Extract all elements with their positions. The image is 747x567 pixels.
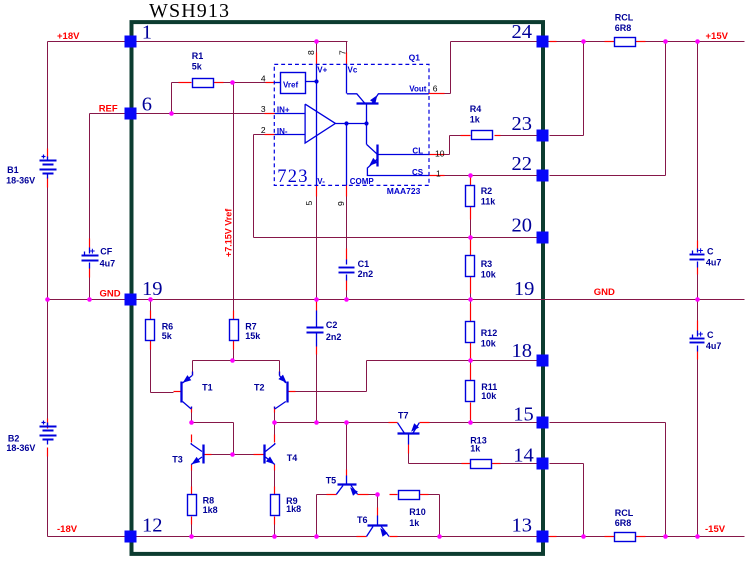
svg-text:IN-: IN-: [277, 127, 288, 136]
svg-text:1k: 1k: [409, 518, 420, 528]
svg-text:-18V: -18V: [57, 524, 78, 535]
svg-text:T6: T6: [357, 515, 368, 525]
svg-text:4u7: 4u7: [100, 259, 116, 269]
svg-text:24: 24: [512, 21, 533, 43]
svg-text:+18V: +18V: [57, 31, 80, 42]
svg-text:10k: 10k: [481, 391, 497, 401]
svg-text:14: 14: [513, 445, 534, 467]
svg-text:Vc: Vc: [348, 66, 358, 75]
svg-text:4u7: 4u7: [706, 258, 722, 268]
svg-text:T4: T4: [287, 453, 298, 463]
svg-text:3: 3: [261, 104, 266, 114]
svg-text:T2: T2: [254, 383, 265, 393]
svg-text:+: +: [698, 246, 703, 256]
svg-text:4: 4: [261, 73, 266, 83]
svg-text:V+: V+: [317, 66, 327, 75]
svg-text:2n2: 2n2: [326, 332, 342, 342]
svg-text:WSH913: WSH913: [149, 0, 230, 22]
svg-text:23: 23: [512, 113, 533, 135]
svg-text:13: 13: [512, 515, 533, 537]
svg-text:R3: R3: [481, 259, 493, 269]
svg-text:19: 19: [142, 278, 163, 300]
svg-text:7: 7: [338, 50, 348, 55]
svg-text:18-36V: 18-36V: [6, 443, 35, 453]
svg-text:MAA723: MAA723: [387, 186, 421, 196]
svg-text:T5: T5: [326, 475, 337, 485]
svg-text:+15V: +15V: [706, 31, 729, 42]
svg-text:Vref: Vref: [283, 81, 298, 90]
svg-text:1k: 1k: [470, 115, 481, 125]
svg-text:10k: 10k: [481, 269, 497, 279]
svg-text:15: 15: [513, 404, 534, 426]
svg-text:11k: 11k: [481, 197, 497, 207]
svg-text:20: 20: [512, 215, 533, 237]
svg-text:5k: 5k: [192, 62, 203, 72]
svg-text:REF: REF: [99, 103, 118, 114]
svg-text:R1: R1: [192, 51, 204, 61]
svg-text:12: 12: [142, 515, 163, 537]
svg-text:CS: CS: [412, 168, 424, 177]
svg-text:1: 1: [436, 169, 441, 179]
svg-text:18: 18: [512, 340, 533, 362]
svg-text:6: 6: [142, 94, 152, 116]
svg-text:18-36V: 18-36V: [6, 175, 35, 185]
svg-text:6R8: 6R8: [615, 518, 632, 528]
svg-text:CL: CL: [412, 146, 423, 155]
svg-text:R12: R12: [481, 328, 498, 338]
svg-text:+7.15V Vref: +7.15V Vref: [224, 208, 234, 257]
svg-text:COMP: COMP: [350, 177, 375, 186]
svg-text:5: 5: [304, 201, 314, 206]
svg-text:RCL: RCL: [615, 13, 634, 23]
svg-text:10k: 10k: [481, 338, 497, 348]
svg-text:6R8: 6R8: [615, 23, 632, 33]
svg-text:1k8: 1k8: [286, 504, 301, 514]
svg-text:T1: T1: [202, 383, 213, 393]
svg-text:4u7: 4u7: [706, 341, 722, 351]
svg-text:C2: C2: [326, 320, 338, 330]
svg-text:GND: GND: [100, 288, 121, 299]
svg-text:1: 1: [142, 22, 152, 44]
svg-text:+: +: [90, 246, 95, 256]
svg-text:GND: GND: [594, 287, 615, 298]
svg-text:1k8: 1k8: [203, 505, 218, 515]
svg-text:T7: T7: [398, 411, 409, 421]
svg-text:6: 6: [433, 83, 438, 93]
svg-text:R10: R10: [409, 507, 426, 517]
svg-text:RCL: RCL: [615, 508, 634, 518]
svg-text:19: 19: [514, 278, 535, 300]
svg-text:9: 9: [336, 201, 346, 206]
svg-text:CF: CF: [100, 246, 112, 256]
svg-text:B1: B1: [7, 165, 19, 175]
svg-text:1k: 1k: [470, 444, 481, 454]
svg-text:5k: 5k: [162, 331, 173, 341]
svg-text:R4: R4: [470, 104, 482, 114]
svg-text:10: 10: [435, 149, 445, 159]
svg-text:+: +: [698, 329, 703, 339]
svg-text:V-: V-: [317, 177, 325, 186]
svg-text:C: C: [707, 330, 714, 340]
svg-text:723: 723: [277, 167, 308, 187]
svg-text:C1: C1: [358, 259, 370, 269]
svg-text:2n2: 2n2: [358, 269, 374, 279]
svg-text:22: 22: [512, 153, 533, 175]
svg-text:C: C: [707, 246, 714, 256]
svg-text:2: 2: [261, 125, 266, 135]
svg-text:-15V: -15V: [705, 524, 726, 535]
svg-text:R2: R2: [481, 186, 493, 196]
svg-text:8: 8: [306, 50, 316, 55]
svg-text:IN+: IN+: [277, 105, 290, 114]
svg-text:Vout: Vout: [409, 84, 427, 93]
svg-text:15k: 15k: [245, 331, 261, 341]
svg-text:T3: T3: [172, 455, 183, 465]
svg-text:B2: B2: [8, 434, 20, 444]
svg-text:Q1: Q1: [409, 52, 421, 62]
